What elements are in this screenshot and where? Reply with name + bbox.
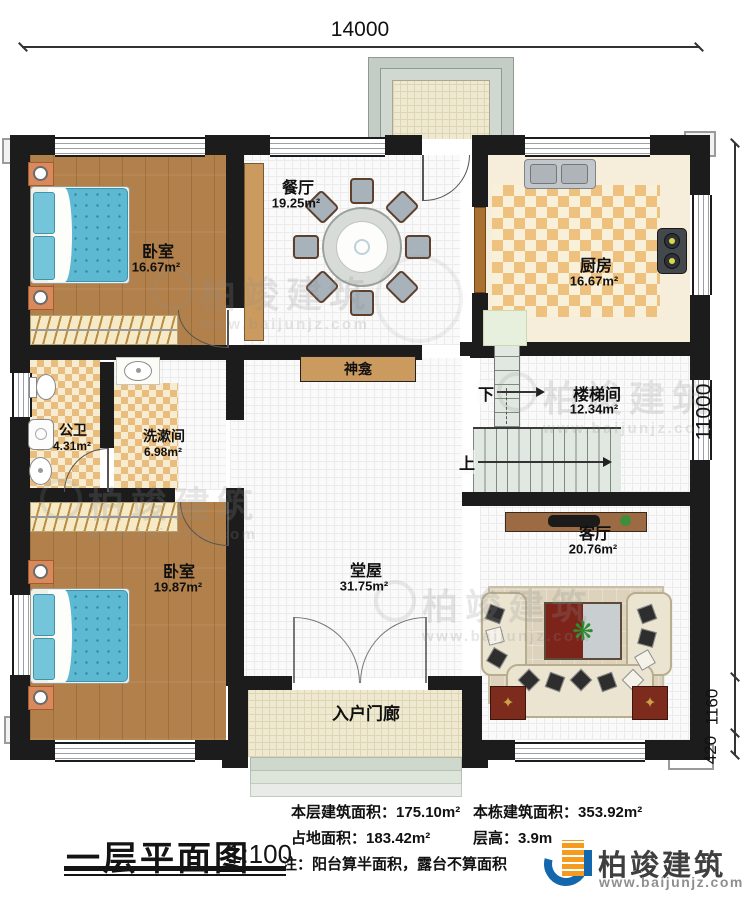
lamp-icon (33, 290, 48, 305)
watermark: 柏竣建筑 www.baijunjz.com (88, 476, 260, 543)
dim-top-value: 14000 (331, 18, 389, 42)
room-area-hall: 31.75m² (340, 579, 388, 594)
room-area-bedroom1: 16.67m² (132, 260, 180, 275)
window-kitchen-top (525, 137, 650, 157)
lamp-icon (33, 166, 48, 181)
kitchen-checker-floor (492, 185, 660, 317)
wash-sink-dot (136, 368, 141, 373)
dim-right-total: 11000 (692, 384, 716, 441)
stair-down-label: 下 (478, 381, 494, 405)
room-label-hall: 堂屋 (350, 557, 382, 581)
pillow (33, 594, 55, 636)
logo-building-side (584, 850, 592, 876)
window-bedroom2-left (12, 595, 32, 675)
wall (690, 135, 710, 195)
rear-door-threshold (422, 139, 472, 153)
chair (293, 235, 319, 259)
stat-floor-area: 本层建筑面积：175.10m² (291, 801, 460, 822)
watermark-url: www.baijunjz.com (422, 628, 594, 645)
wall (472, 155, 488, 207)
stat-value: 353.92m² (578, 804, 642, 821)
shrine-label: 神龛 (344, 359, 372, 379)
window-living-bottom (515, 742, 645, 762)
stair-up-arrowhead (603, 457, 612, 467)
door-arc-rear-entry (424, 155, 470, 201)
room-label-bedroom2: 卧室 (163, 558, 195, 582)
window-kitchen-right (692, 195, 712, 295)
stat-building-area: 本栋建筑面积：353.92m² (473, 801, 642, 822)
room-area-kitchen: 16.67m² (570, 274, 618, 289)
wall (385, 135, 422, 155)
wall (100, 362, 114, 448)
brand-logo-icon (544, 836, 592, 894)
stat-label: 本栋建筑面积： (473, 804, 578, 821)
room-label-bedroom1: 卧室 (142, 238, 174, 262)
plant-dot (620, 515, 631, 526)
bath-sink-dot (38, 468, 43, 473)
wardrobe (30, 315, 178, 345)
room-label-porch: 入户门廊 (332, 700, 400, 725)
room-area-dining: 19.25m² (272, 196, 320, 211)
room-area-bath: 4.31m² (53, 439, 91, 453)
chair (350, 178, 374, 204)
wall (472, 135, 525, 155)
porch-step-3 (250, 783, 462, 797)
watermark-name: 柏竣建筑 (422, 586, 594, 627)
dim-right-porch: 1160 (702, 689, 722, 726)
wall (462, 492, 690, 506)
room-area-living: 20.76m² (569, 542, 617, 557)
window-bedroom1-top (55, 137, 205, 157)
lamp-icon (33, 564, 48, 579)
stat-value: 183.42m² (366, 830, 430, 847)
watermark-name: 柏竣建筑 (200, 274, 372, 315)
room-area-stair: 12.34m² (570, 402, 618, 417)
logo-building (562, 840, 584, 876)
brand-url: www.baijunjz.com (599, 874, 744, 890)
dim-line-top (22, 46, 700, 48)
wall (462, 742, 488, 768)
watermark-glyph (375, 255, 463, 343)
wall (230, 676, 292, 690)
wall (205, 135, 270, 155)
side-table-medallion: ✦ (644, 696, 657, 711)
watermark: 柏竣建筑 www.baijunjz.com (422, 578, 594, 645)
dim-right-steps: 420 (701, 736, 721, 764)
room-area-bedroom2: 19.87m² (154, 580, 202, 595)
wall (226, 360, 244, 420)
stove-burner-dot (669, 238, 675, 244)
toilet-icon (36, 374, 56, 400)
floor-plan-canvas: 神龛 下 上 ❋ (0, 0, 750, 904)
stat-value: 175.10m² (396, 804, 460, 821)
door-leaf (422, 155, 424, 201)
pillow (33, 638, 55, 680)
wall (690, 295, 710, 380)
stat-label: 层高： (473, 830, 518, 847)
wall (10, 135, 30, 373)
plan-note: 注：阳台算半面积，露台不算面积 (282, 853, 507, 874)
watermark-name: 柏竣建筑 (88, 484, 260, 525)
stat-label: 本层建筑面积： (291, 804, 396, 821)
wall (10, 740, 55, 760)
side-table-medallion: ✦ (502, 696, 515, 711)
watermark-url: www.baijunjz.com (200, 316, 372, 333)
watermark-url: www.baijunjz.com (88, 526, 260, 543)
dim-line-right (734, 143, 736, 755)
window-dining-top (270, 137, 385, 157)
stair-up-arrow-line (478, 461, 606, 463)
plan-title: 一层平面图 (66, 831, 251, 880)
window-bedroom2-bottom (55, 742, 195, 762)
watermark: 柏竣建筑 www.baijunjz.com (200, 266, 372, 333)
room-label-wash: 洗漱间 (143, 426, 185, 446)
kitchen-sink-basin (530, 164, 557, 184)
wall (222, 742, 248, 768)
title-underline-thick (64, 866, 286, 871)
room-label-living: 客厅 (579, 520, 611, 544)
lamp-icon (33, 690, 48, 705)
room-label-dining: 餐厅 (282, 174, 314, 198)
stair-up-label: 上 (459, 450, 475, 474)
room-label-kitchen: 厨房 (580, 252, 612, 276)
stove-burner-dot (669, 258, 675, 264)
watermark-glyph (40, 478, 82, 520)
kitchen-mat (483, 310, 527, 346)
kitchen-slide-door (474, 207, 486, 293)
stat-land-area: 占地面积：183.42m² (291, 827, 430, 848)
door-leaf (293, 617, 295, 683)
kitchen-sink-basin (561, 164, 588, 184)
wall (428, 676, 480, 690)
rear-porch-floor (392, 80, 490, 142)
pillow (33, 236, 55, 280)
washing-machine-drum (35, 428, 47, 440)
dining-table-center (354, 239, 370, 255)
room-area-wash: 6.98m² (144, 445, 182, 459)
room-label-bath: 公卫 (59, 420, 87, 440)
pillow (33, 192, 55, 234)
watermark-glyph (497, 372, 537, 412)
watermark-url: www.baijunjz.com (543, 420, 715, 437)
stat-floor-height: 层高：3.9m (473, 827, 552, 848)
wall (10, 417, 30, 595)
stat-label: 占地面积： (291, 830, 366, 847)
title-underline-thin (64, 874, 286, 876)
